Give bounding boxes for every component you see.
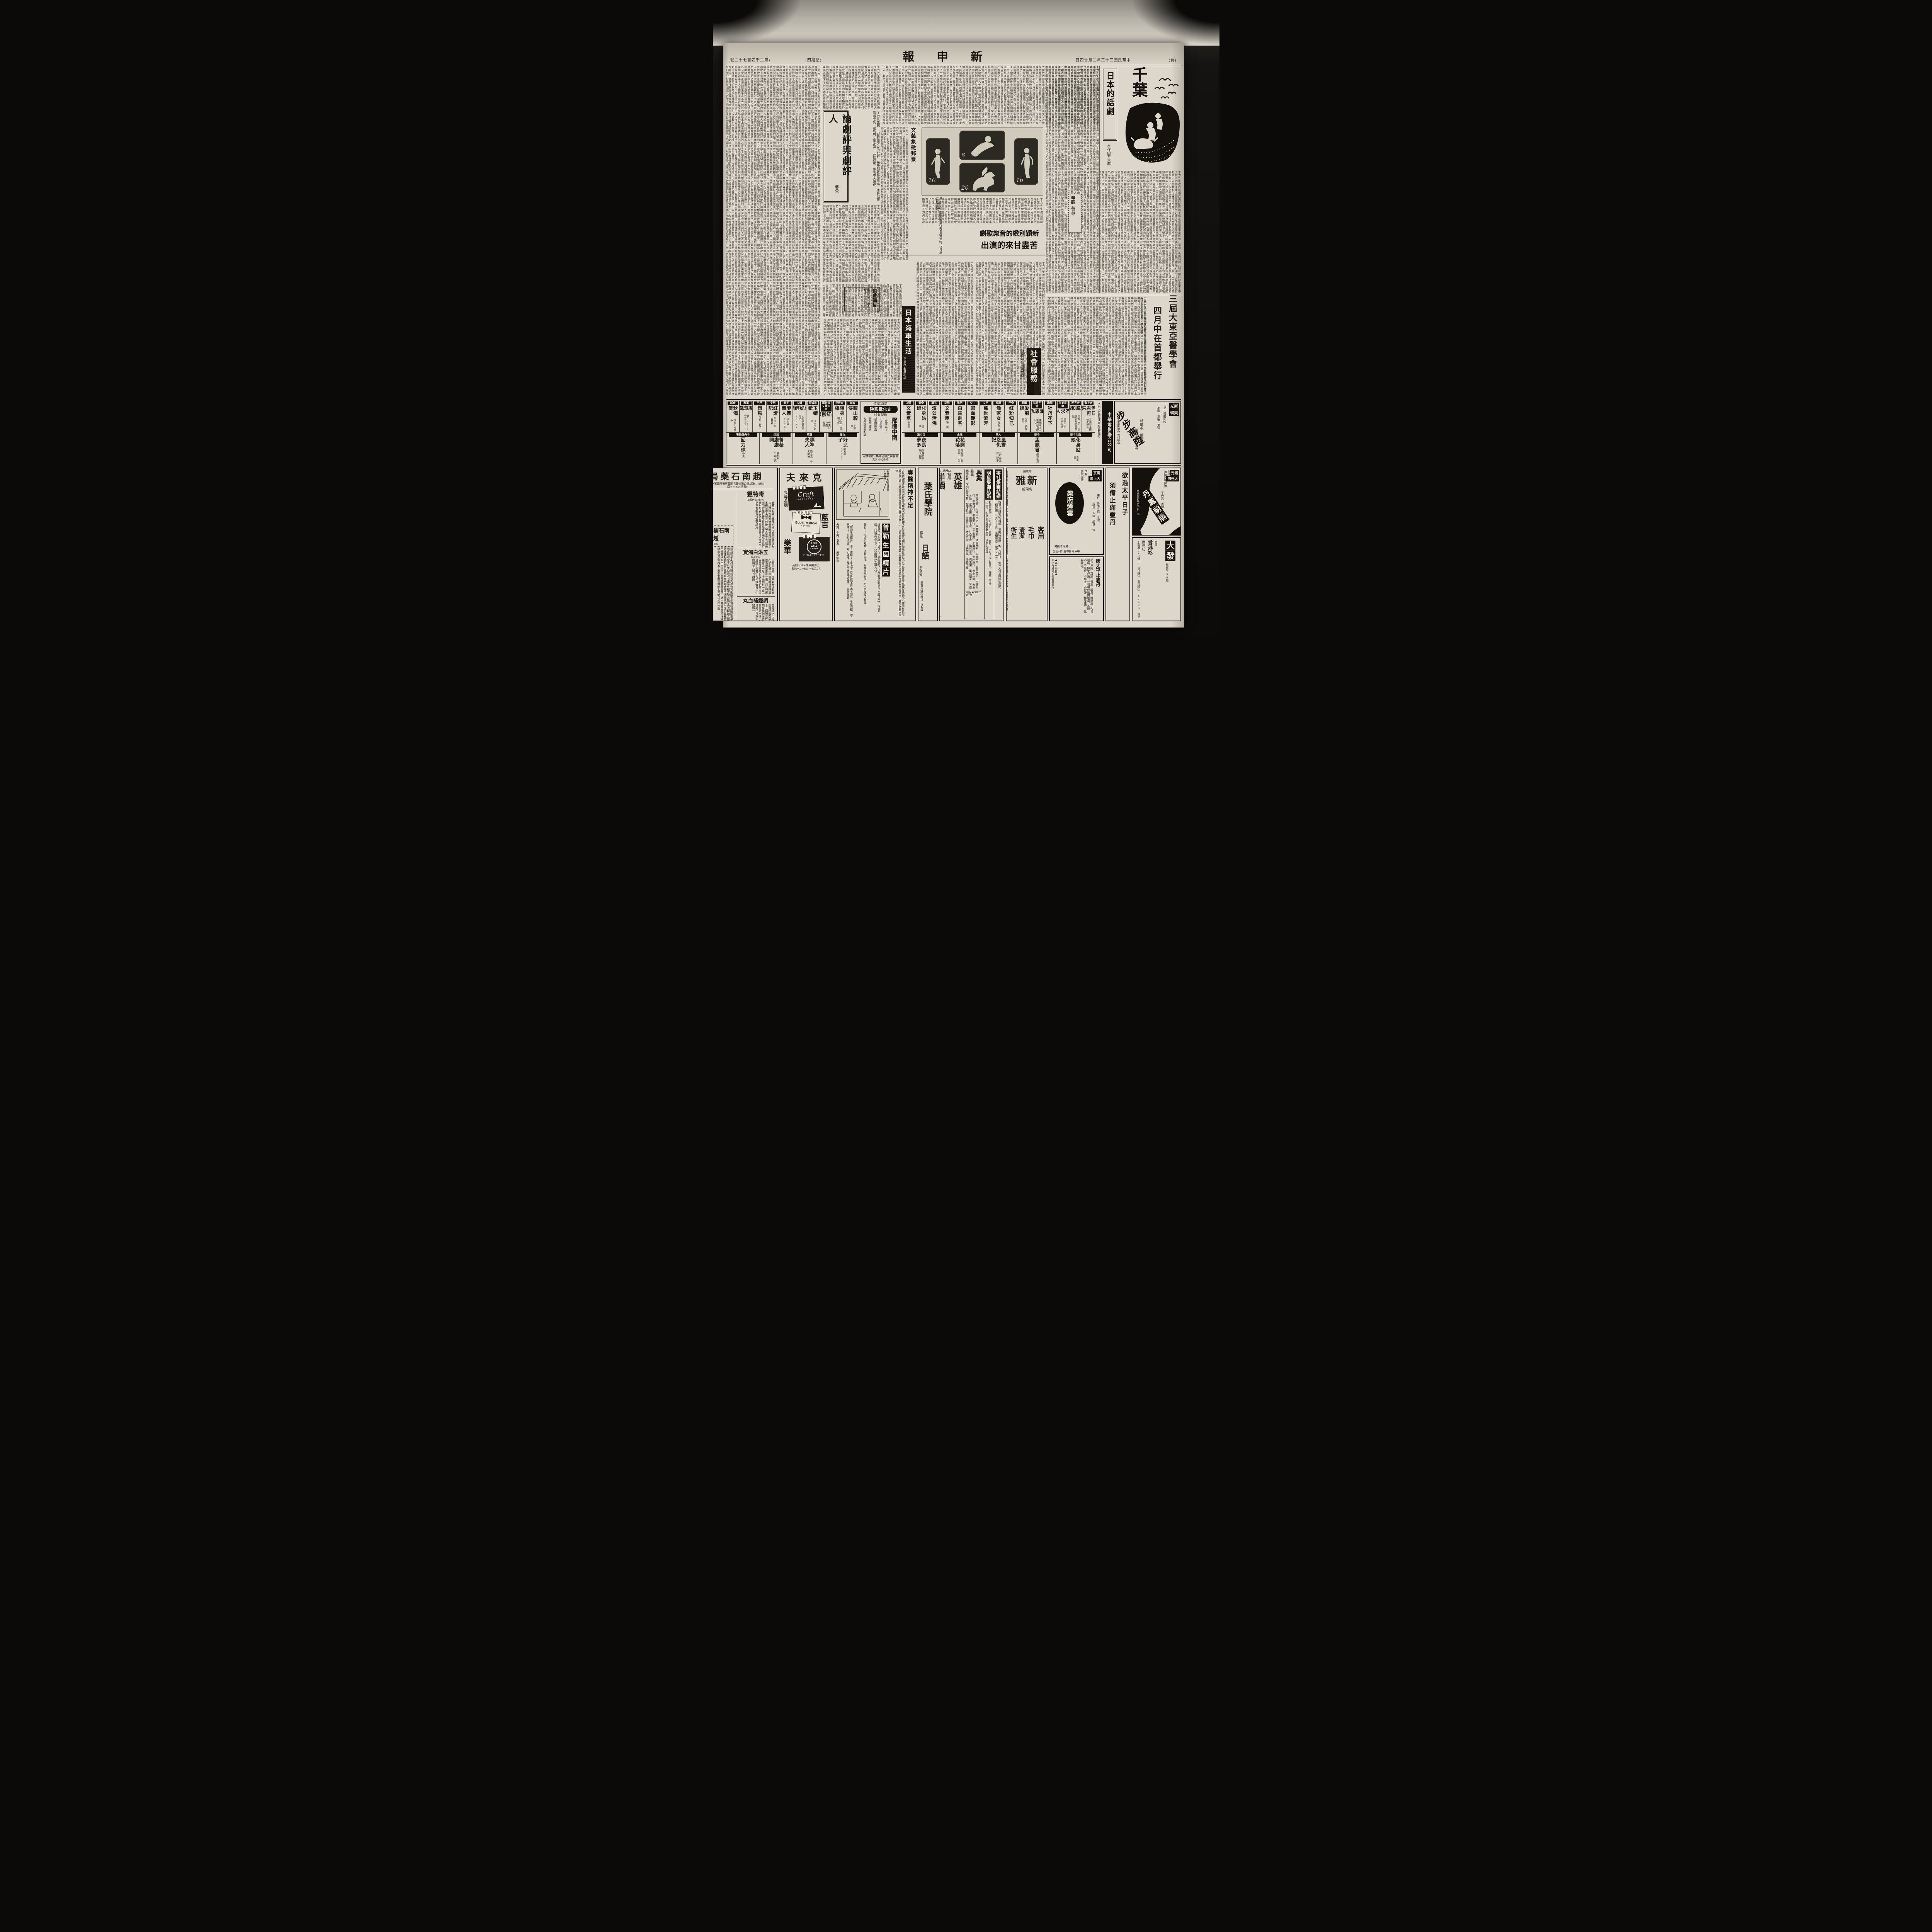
film-note: 龔秋霞 名曲五支 — [774, 452, 779, 463]
cinema-slogan: 明瞭現階段新中國躍進狀態 非此片不可不看 — [862, 454, 899, 461]
film-note: 二時半五時八時半 — [996, 452, 1001, 463]
film-subtitle: (軍事篇) — [884, 417, 888, 454]
shop-address: 正陽路280號 — [1165, 562, 1168, 589]
venue-label: 琪美 — [1169, 409, 1179, 416]
film-note: 平涼路 — [850, 425, 855, 432]
film-title: 碧血艷影 — [970, 406, 975, 426]
product-name: 寶濁白淋五 — [737, 548, 775, 556]
xinya-restaurant-ad: 路京南 雅新 館菜粤 客用 毛巾 清潔 衛生 毛巾獻客，成為飲食館之習慣，然此物… — [1006, 468, 1048, 621]
venue-label: 明光大 — [1070, 401, 1080, 405]
cinema-listing: 新新薔薇處處開龔秋霞 名曲五支 — [760, 432, 793, 464]
chiba-column-title: 日本的話劇 — [1103, 68, 1117, 141]
shop-item: 無光紡 — [1141, 540, 1145, 618]
venue-label: 滙老百 — [905, 433, 938, 437]
venue-label: 安平 — [980, 401, 990, 405]
cinema-name: 院影電化文 — [864, 406, 898, 413]
cinema-listing: 泰國愛船娘今天 德國巨片 — [1018, 401, 1031, 432]
medical-congress-headline: 三屆大東亞醫學會 四月中在首都舉行 — [1148, 294, 1181, 395]
navy-life-box: 日本海軍生活 平出英夫著 無心譯 — [902, 306, 915, 393]
tonic-header-col: 專醫精神不足 — [906, 469, 914, 619]
ad-cast: 李紅 歐陽莎菲 主演 — [1097, 494, 1100, 540]
cinema-listing: 榮金化身姑娘第二集 — [915, 401, 927, 432]
stamp-standing-figure: 16 — [1014, 138, 1038, 185]
article-text: 丁力先生說目前劇評家的批評幾乎都是感情用事也許他在看戲之先剛巧有女朋友請取觀衆筆… — [726, 66, 821, 395]
film-title: 薔薇處處開 — [769, 437, 784, 452]
article-text: 丁力先生說目前劇評家的批評幾乎都是感情用事也許他在看戲之先剛巧有女朋友請取觀衆筆… — [881, 127, 909, 260]
studio-price: 四十元 — [939, 600, 940, 613]
film-title: 躍進中國 — [890, 417, 898, 454]
film-company-note: ●七大首輪加映大東亞新聞片 — [1096, 401, 1101, 464]
venue-label: 山滙 — [943, 433, 976, 437]
cinema-listing: 門西烈馬今夜 斬子 — [753, 401, 766, 432]
ad-headline: 清潔 — [1018, 494, 1026, 571]
blue-ribbon-pack: BLUE RIBBON Cigarettes — [791, 512, 821, 534]
studio-note: ●本月底止● — [939, 615, 963, 618]
lohwha-tin: LOHWHA IT'S TOASTED CIGARETTES — [799, 537, 830, 561]
cinema-listing: 安靜貴妃醉酒云裳歌舞劇團 電話23842 — [793, 401, 806, 432]
film-note: 袁美雲 — [1073, 456, 1078, 463]
cinema-listing: 海上大何日君再來袁美雲主演 後天新片 — [1082, 401, 1095, 432]
fee-box-note: 每行計算 補白另議 — [864, 289, 870, 310]
photo-studio-ad: 靜安寺路1251號西口 英雄 相館 半價 贈送放大 十二寸一張 十寸一張 四寸半… — [939, 469, 963, 619]
navy-life-title: 日本海軍生活 — [903, 309, 913, 355]
stamp-reclining-figure: 6 — [959, 131, 1005, 160]
headline-line2: 出演的來甘盡苦 — [974, 239, 1045, 251]
ad-studio: 品出司公合聯影電華中 — [1053, 550, 1080, 553]
venue-label: 華大 — [982, 433, 1015, 437]
restaurant-name: 雅新 — [1010, 473, 1045, 487]
film-title: 紅燈記 — [768, 406, 777, 417]
medicine-maker: 大上海路唐拾義藥廠發行 — [1051, 559, 1054, 619]
venue-label: 亞派恩 — [808, 401, 818, 405]
venue-label: 光新光滬 — [1032, 401, 1042, 408]
shop-name-tiles: 大發 — [1165, 541, 1175, 561]
cinema-cells-right: 海上大何日君再來袁美雲主演 後天新片明光大鸞鳳和鳴只有二天 後天新片丹鳳朝陽琪美… — [902, 401, 1095, 464]
cinema-listing: 琪美京南不求人最後二天 切勿錯過 — [1056, 401, 1069, 432]
venue-label: 榮金 — [916, 401, 926, 405]
tonic-copy: 「普勒生固精片」治(遺精)(早洩)以及性能不健全之痼疾，生精固精，寧神兼施，斷根… — [840, 523, 853, 617]
film-title: 化身姑娘 — [916, 406, 926, 425]
navy-life-translator: 無心譯 — [903, 371, 907, 379]
school-extra: 兼教英算 — [919, 563, 922, 580]
musical-review-headline: 劇歌樂音的緻別穎新 出演的來甘盡苦 — [974, 228, 1045, 258]
chiba-feature: 千葉 日本的話劇 久保田万太郎 — [1102, 66, 1181, 169]
dafa-shop-ad: 大發 正陽路280號 出售 香港衫 無光紡 (歡迎)(代做) 來料購送 電話即送… — [1132, 537, 1181, 621]
venue-label: 國萬 — [741, 401, 751, 405]
title-tile-char: 普 — [882, 524, 890, 532]
wedding-copy: 包仙樂禮堂 三月四日 素章·禮服 三月26日登記 分社山西路一〇二時 新島南京路… — [985, 501, 992, 590]
film-note: 只有二天 後天新片丹鳳朝陽 — [1071, 415, 1080, 432]
tonic-copy: 普勒生，治男性暗病、遺精早洩、服食三片見效，乃空前絕後之神藥。 — [854, 523, 867, 617]
restaurant-road: 路京南 — [1010, 470, 1045, 473]
film-note: 汪秀英 96761 — [783, 418, 789, 432]
lanji-name: 藍吉 — [819, 514, 830, 528]
cinema-listing: 亞派恩玉蜻蜓月筱珍登台 — [806, 401, 819, 432]
film-note: 周璇主演 — [1036, 452, 1038, 463]
cinema-listing: 聯國牡丹花下 — [1043, 401, 1056, 432]
film-title: 隱身機 — [835, 406, 844, 417]
venue-label: 聯國 — [1045, 401, 1055, 405]
school-address: 靜安寺路赫德路口 授會話 — [919, 580, 923, 612]
film-title: 標準夫人 — [804, 437, 814, 450]
cinema-listing: 和東曠山騎俠平涼路 — [846, 401, 859, 432]
ad-headline: 毛巾 — [1026, 494, 1036, 571]
scan-edge-fog — [713, 0, 1219, 46]
film-title: 夜長夢多 — [916, 437, 926, 449]
fee-box-title: 稿費價目 — [872, 289, 878, 310]
congress-line1: 三屆大東亞醫學會 — [1166, 294, 1179, 395]
film-title: 曠山騎俠 — [848, 406, 857, 425]
venue-label: 華光 — [929, 401, 939, 405]
cinema-listing: 海西白馬劍客 — [953, 401, 966, 432]
restaurant-copy: 毛巾獻客，成為飲食館之習慣，然此物公用，必須審慎，始不妨礙衛生。本館客巾備有二千… — [1006, 470, 1009, 613]
venue-label: 安靜 — [794, 401, 804, 405]
slogan-line2: 須備止痛靈丹 — [1107, 482, 1116, 621]
editorial-area: 丁力先生說目前劇評家的批評幾乎都是感情用事也許他在看戲之先剛巧有女朋友請取觀衆筆… — [726, 66, 1181, 396]
navy-life-byline: 平出英夫著 — [903, 357, 907, 371]
wedding-copy: 婚費包括閘利新禮服 王開結婚照 新三月四日 仙林大禮堂樂隊浩蕩花一切齊備 三月2… — [995, 501, 1002, 590]
newspaper-page: (號二十七百四千二第) (四期星) 報申新 日四廿月二年三十三國民華中 (賈) … — [723, 43, 1184, 628]
cinema-listing: 樂長夢裏情人汪秀英 96761 — [779, 401, 793, 432]
feature-film-ad: 光新 琪美 下期 兩院同映 張帆 周映 主演 步步高陞 韓蘭根 關宏達 殷秀岑 … — [1114, 401, 1181, 464]
tonic-header-copy: 人生精神而勝黃金四肢百體毫無病狀實患精神不足比隨便毛病更加痛恨況且不出苦處終常作… — [891, 469, 905, 616]
cinema-listing: 萊蓬標準夫人陳燕燕 今天獻映 — [793, 432, 826, 464]
masthead-title: 報申新 — [903, 47, 1005, 64]
product-copy: 治五淋白濁王道藥驗無論新起久患能保一瓶痊癒勸根萬試萬靈憑此廣告買一送一瓶無效退藥… — [737, 559, 775, 596]
venue-label: 城金 — [728, 401, 738, 405]
pharmacy-phone: )四三三五九話電( — [713, 485, 776, 489]
broker-service: 代理買賣 下列股票 — [966, 469, 969, 494]
title-tile-char: 片 — [882, 568, 890, 577]
venue-label: 萊蓬 — [795, 433, 824, 437]
stamp-standing-figure: 10 — [926, 138, 950, 185]
cigarette-phone: (電話)一二一四四·一五〇二九 — [782, 567, 830, 570]
cinema-listing: 華中市南化身姑娘袁美雲 — [1056, 432, 1095, 464]
page-date: 日四廿月二年三十三國民華中 — [1076, 57, 1131, 63]
article-text: 丁力先生說目前劇評家的批評幾乎都是感情用事也許他在看戲之先剛巧有女朋友請取觀衆筆… — [1046, 66, 1100, 293]
film-title: 桃紅柳綠 — [820, 412, 833, 422]
stamps-figure: 10 6 20 16 — [922, 128, 1043, 196]
film-title: 夢裏情人 — [781, 406, 791, 418]
cinema-listings-band: 光新 琪美 下期 兩院同映 張帆 周映 主演 步步高陞 韓蘭根 關宏達 殷秀岑 … — [726, 399, 1181, 466]
film-title: 化身姑娘 — [1071, 437, 1080, 456]
craft-cigarette-ad: 夫來克 高等名烟 Craft CIGARETTES BLUE RIBBON Ci… — [779, 468, 833, 621]
broker-phone: 電話 ◆ 91626 91121 — [966, 591, 983, 597]
painkiller-slogan-ad: 欲過太平日子 須備止痛靈丹 — [1105, 468, 1130, 621]
product-copy: 主治經水不調乾血癆調經臨腹痛白帶下一切婦女經病易如反掌保全症為此黃用愚一送一先吃… — [737, 604, 775, 621]
drama-essay-title: 論劇評與劇評人 — [826, 114, 853, 184]
product-name: 靈特毒 — [737, 490, 775, 498]
ad-note: 下期 兩院同映 — [1163, 404, 1166, 431]
film-title: 孟麗君 — [1034, 437, 1039, 452]
venue-label: 海上大 — [1083, 401, 1094, 405]
broker-type: 股票 — [969, 469, 974, 476]
venue-label: 場動運央中 — [729, 433, 757, 437]
cigarette-maker: 品出司公草煙華樂海上 — [782, 564, 830, 567]
film-note: 李麗華主演 後天起換映新片 — [1033, 419, 1041, 432]
social-service-title: 社會服務 — [1028, 350, 1039, 383]
wedding-ad-mingxing: 明星集團結婚 包仙樂禮堂 三月四日 素章·禮服 三月26日登記 分社山西路一〇二… — [984, 469, 993, 619]
ad-cast: 殷秀岑 主演 — [1134, 429, 1139, 464]
cinema-listing: 山滙花開花落提籃橋 袁美雲 王引 — [940, 432, 979, 464]
venue-label: 江浙 — [903, 401, 913, 405]
illustration-caption: 諸葛亮·開蜀漢基業· — [886, 470, 889, 517]
film-title: 樂府煙雲 — [1065, 490, 1074, 516]
title-tile-char: 生 — [882, 541, 890, 550]
article-text: 丁力先生說目前劇評家的批評幾乎都是感情用事也許他在看戲之先剛巧有女朋友請取觀衆筆… — [823, 319, 900, 395]
article-text: 丁力先生說目前劇評家的批評幾乎都是感情用事也許他在看戲之先剛巧有女朋友請取觀衆筆… — [823, 205, 880, 282]
venue-label: 泰國 — [1019, 401, 1029, 405]
ads-column-right: 光滬 明光大 兩院同時獻映 下期 丹鳳朝陽 王丹鳳 姜明 主演 高梨痕 導演 中… — [1132, 468, 1181, 621]
zhuge-liang-illustration — [836, 469, 890, 520]
film-note: 商芳臣 82623 — [840, 447, 845, 463]
film-note: 電50162 今日二本 — [743, 415, 749, 432]
venue-label: 星明 — [942, 401, 952, 405]
stamp-pegasus: 20 — [959, 163, 1005, 192]
poem-title: 辛醜 — [1070, 196, 1076, 204]
cinema-listing: 華大風雪恩仇記二時半五時八時半 — [979, 432, 1018, 464]
title-tile-char: 精 — [882, 559, 890, 568]
cinema-listing: 光新光滬藝海恩仇記李麗華主演 後天起換映新片 — [1031, 401, 1043, 432]
cinema-location: 堍橋路浦韜 — [862, 402, 899, 405]
stamp-value: 10 — [928, 177, 935, 184]
program-item: 新生的武漢 — [874, 417, 877, 454]
film-title: 萬世流芳 — [983, 406, 988, 426]
film-title: 秋海棠 — [728, 406, 738, 418]
cinema-listing: 場動運央中回力球今天 — [726, 432, 759, 464]
film-title: 雙珠鳳 — [740, 406, 753, 415]
title-tile-char: 勒 — [882, 532, 890, 541]
fee-box: 稿費價目 每行計算 補白另議 — [844, 287, 880, 311]
film-note: 今夜七時半演 — [730, 419, 736, 432]
film-subtitle: (外交篇) — [879, 417, 882, 454]
title-tile-char: 大 — [1165, 541, 1175, 551]
ads-column-2: 欲過太平日子 須備止痛靈丹 京南 海上大 下期 兩院同映 樂府煙雲 李紅 歐陽莎… — [1049, 468, 1130, 621]
wedding-ad-ningshe: 寧社集團結婚 婚費包括閘利新禮服 王開結婚照 新三月四日 仙林大禮堂樂隊浩蕩花一… — [994, 469, 1002, 619]
film-company-banner: 中華電影聯合公司 — [1102, 401, 1113, 464]
film-title: 紅粉知己 — [1009, 406, 1014, 426]
advertising-band: 光滬 明光大 兩院同時獻映 下期 丹鳳朝陽 王丹鳳 姜明 主演 高梨痕 導演 中… — [726, 468, 1181, 621]
venue-label: 都麗 — [993, 401, 1003, 405]
cinema-cells-left: 和東曠山騎俠平涼路界世大隱身機大京班 三樓電影團劇濱文華中大桃紅柳綠今天日夜戲 … — [726, 401, 859, 464]
ad-studio: 中華電影聯合公司出品 — [1117, 417, 1120, 463]
cinema-note: (今日起映) — [862, 413, 899, 416]
program-item: 大東亞電影新聞 — [863, 417, 866, 454]
venue-label: 央中 — [968, 401, 978, 405]
cinema-listing: 華光濟公活佛 — [928, 401, 940, 432]
film-note: 第三集 — [907, 421, 910, 429]
ad-note: 下期 — [1167, 470, 1170, 485]
cinema-listing: 央中碧血艷影 — [966, 401, 979, 432]
studio-address: 靜安寺路1251號西口 — [939, 469, 963, 473]
congress-line2: 四月中在首都舉行 — [1151, 306, 1163, 395]
film-note: 月筱珍登台 — [810, 420, 815, 432]
page-header: (號二十七百四千二第) (四期星) 報申新 日四廿月二年三十三國民華中 (賈) — [726, 43, 1181, 66]
film-title: 牡丹花下 — [1048, 406, 1053, 426]
venue-label: 新新 — [762, 433, 791, 437]
school-mode: 個別 — [919, 528, 923, 541]
product-copy: 弱精補身本局發行班龍補腎丸專治腎虧精萎夢遺精滑精陽萎早洩房事過度精竭少年延年益壽… — [713, 548, 733, 621]
wedding-banner: 寧社集團結婚 — [995, 469, 1002, 500]
venue-label: 華中 — [1020, 433, 1053, 437]
stamp-value: 6 — [961, 152, 965, 159]
product-tag: 單保立出 — [737, 556, 775, 559]
film-note: 今天 德國巨片 — [1021, 418, 1027, 432]
shop-offer: 出售 — [1154, 540, 1157, 618]
film-title: 玉蜻蜓 — [808, 406, 818, 420]
pharmacy-product-right: 憑此廣告 買一送一 無效不贈 此券有效 祇有三天 贈送 丸腎補石南趙 班龍 弱精… — [713, 490, 734, 621]
tonic-copy: 諸葛亮，字孔明，漢郡人，居臥龍岡，徐庶薦與劉玄德，三顧求之，未出茅廬，已知三分天… — [868, 523, 881, 617]
film-title: 濟公活佛 — [932, 406, 937, 426]
cigarette-tagline: 高等名烟 — [782, 481, 789, 516]
cinema-listing: 安西紅燈記今夜三本 孟麗君 — [766, 401, 779, 432]
film-title: 文素臣 — [906, 406, 911, 421]
venue-label: 華中市南 — [1059, 433, 1092, 437]
cinema-listing: 明光大鸞鳳和鳴只有二天 後天新片丹鳳朝陽 — [1069, 401, 1082, 432]
broker-list: 閘北水電 內地自來水 華商電氣 浦東電氣 五洲藥房 龍章造紙 金城銀行 中南銀行… — [966, 494, 979, 591]
film-title: 風雪恩仇記 — [991, 437, 1006, 452]
film-title: 文素臣 — [944, 406, 949, 421]
pharmacy-product-left: 靈特毒 )藥服內瘡疥好包( 此藥內服專治各種疥瘡皮膚濕毒等症服後功效偉大藥力速保… — [736, 490, 776, 621]
film-title: 愛船娘 — [1019, 406, 1029, 418]
film-note: 最後二天 切勿錯過 — [1060, 418, 1065, 432]
film-note: 周璇主演 — [997, 421, 1000, 431]
ad-director: 高梨痕 導演 — [1155, 501, 1158, 532]
social-service-subtitle: 商困民生兼籌並顧 — [1017, 350, 1026, 395]
film-note: 今夜 斬子 — [758, 416, 761, 429]
wedding-banner: 明星集團結婚 — [985, 469, 993, 500]
film-title: 回力球 — [740, 437, 745, 452]
film-title-oval: 樂府煙雲 — [1055, 482, 1084, 524]
cinema-listing: 界世大隱身機大京班 三樓電影 — [833, 401, 846, 432]
venue-label: 門金 — [1006, 401, 1016, 405]
film-title: 白馬劍客 — [957, 406, 963, 426]
cinema-listing: 星九好兒子商芳臣 82623 — [826, 432, 859, 464]
illustration-caption: 未出茅廬· — [883, 470, 886, 513]
venue-label: 安西 — [767, 401, 778, 405]
stamp-value: 20 — [961, 184, 969, 191]
article-text: 丁力先生說目前劇評家的批評幾乎都是感情用事也許他在看戲之先剛巧有女朋友請取觀衆筆… — [917, 262, 974, 395]
shop-note: (歡迎)(代做) 來料購送 電話即送 87543 貨上 — [1137, 540, 1140, 618]
ad-note: 兩院同映 — [1080, 470, 1083, 493]
lohwha-name: 樂華 — [782, 539, 792, 554]
cinema-listing: 江浙文素臣第三集 — [902, 401, 915, 432]
yeshi-school-ad: 葉氏學院 個別 日語 兼教英算 靜安寺路赫德路口 授會話 — [918, 468, 938, 621]
product-name: 丸腎補石南趙 — [713, 527, 732, 542]
venue-label: 海西 — [955, 401, 965, 405]
culture-cinema-ad: 堍橋路浦韜 院影電化文 (今日起映) 躍進中國 (軍事篇) (外交篇) 新生的武… — [861, 401, 901, 464]
film-note: 袁美雲主演 後天新片 — [1086, 418, 1091, 432]
film-note: 云裳歌舞劇團 電話23842 — [795, 415, 803, 432]
film-title: 何日君再來 — [1082, 406, 1095, 418]
school-name: 葉氏學院 — [922, 470, 934, 528]
film-note: 今天 — [742, 452, 744, 457]
product-copy: 此藥內服專治各種疥瘡皮膚濕毒等症服後功效偉大藥力速保險斷根萬試萬靈永不復發根本解… — [737, 502, 775, 548]
product-tag: )藥服內瘡疥好包( — [737, 498, 775, 502]
article-text: 丁力先生說目前劇評家的批評幾乎都是感情用事也許他在看戲之先剛巧有女朋友請取觀衆筆… — [1100, 171, 1181, 293]
danfeng-movie-ad: 光滬 明光大 兩院同時獻映 下期 丹鳳朝陽 王丹鳳 姜明 主演 高梨痕 導演 中… — [1132, 468, 1181, 536]
ad-director: 何兆璋導演 — [1054, 545, 1068, 548]
poem-subtitle: 薔薇 — [1070, 206, 1076, 215]
cinema-listing: 滙老百夜長夢多滑稽喜劇 明天獻映 — [902, 432, 940, 464]
venue-label: 和東 — [847, 401, 858, 405]
venue-label: 樂長 — [781, 401, 791, 405]
ad-cast: 韓蘭根 關宏達 — [1139, 419, 1145, 462]
film-note: 大京班 三樓電影 — [837, 417, 842, 432]
drama-essay-author: 藝公 — [833, 185, 839, 193]
zhaonanshi-pharmacy-ad: 局藥石南趙 家一第壁隔署察警閘老面後司公新新海上)址地( )四三三五九話電( 靈… — [713, 468, 778, 621]
film-title: 烈馬 — [757, 406, 762, 416]
tonic-name-tiles: 普勒生固精片 — [882, 523, 890, 617]
pharmacy-name: 局藥石南趙 — [713, 470, 776, 482]
ad-studio: 中華電影聯合公司出品 — [1136, 490, 1139, 536]
medicine-name: 唐太平止痛丹 — [1095, 559, 1102, 619]
chiba-title: 千葉 — [1131, 66, 1146, 97]
venue-label: 琪美京南 — [1058, 401, 1068, 408]
title-tile-char: 發 — [1165, 551, 1175, 561]
venue-label: 團劇濱文華中大 — [821, 401, 831, 412]
drama-essay-box: 論劇評與劇評人 藝公 — [823, 111, 849, 202]
tonic-header: 專醫精神不足 — [906, 469, 914, 509]
congress-dateline: △南京訊 第三屆大東亞醫學會，定四月中在首都擧行，人民負擔者，利用職務……二七人… — [1128, 298, 1147, 394]
cinema-listing: 門金紅粉知己 — [1005, 401, 1017, 432]
tonic-sellers: 先施，中央，寶嵩……藥房均售 — [836, 523, 839, 617]
cinema-listing: 城金秋海棠今夜七時半演 — [726, 401, 739, 432]
classified-ads: 寧社集團結婚 婚費包括閘利新禮服 王開結婚照 新三月四日 仙林大禮堂樂隊浩蕩花一… — [939, 468, 1004, 621]
cinema-listing: 星明文素臣第二集 — [940, 401, 953, 432]
film-title: 漁家女 — [996, 406, 1001, 421]
stamp-value: 16 — [1016, 177, 1024, 184]
studio-offer: 半價 — [939, 473, 947, 554]
broker-name: 興業 — [975, 469, 983, 481]
film-note: 第二集 — [946, 421, 948, 429]
ad-cast: 舘適 主演 嚴俊 演 — [1092, 503, 1095, 546]
headline-line1: 劇歌樂音的緻別穎新 — [974, 228, 1045, 238]
cigarette-brand: 夫來克 — [782, 470, 830, 483]
tangtaiping-painkiller-ad: 唐太平止痛丹 立止牙痛、耳痛、骨痛、腰痛、瘋濕痛、各種頭痛、婦女經痛、一切神經肌… — [1049, 556, 1104, 621]
ad-headline: 衛生 — [1010, 494, 1018, 571]
edition-marker: (賈) — [1169, 57, 1177, 63]
chiba-author: 久保田万太郎 — [1107, 145, 1112, 168]
film-note: 陳燕燕 今天獻映 — [807, 450, 812, 463]
medicine-copy: 立止牙痛、耳痛、骨痛、腰痛、瘋濕痛、各種頭痛、婦女經痛、一切神經肌肉疼痛，不礙心… — [1058, 559, 1093, 613]
social-service-box: 社會服務 — [1027, 348, 1041, 395]
weekday: (四期星) — [806, 57, 822, 63]
film-title: 藝海恩仇記 — [1031, 409, 1043, 419]
craft-pack: Craft CIGARETTES — [787, 486, 824, 511]
drama-essay-opening: 丁力先生說：「目前劇評家的批評，幾乎都是感情用事，也許他在看戲之先，剛巧有女朋友… — [851, 111, 880, 202]
school-program: 日語 — [919, 541, 930, 563]
lohwha-sub: CIGARETTES — [799, 554, 829, 557]
venue-label: 界世大 — [834, 401, 845, 405]
title-tile-char: 固 — [882, 550, 890, 559]
venue-label: 門西 — [754, 401, 765, 405]
venue-label: 光滬 — [1170, 470, 1179, 476]
cinema-listing: 安平萬世流芳 — [979, 401, 992, 432]
article-text: 丁力先生說目前劇評家的批評幾乎都是感情用事也許他在看戲之先剛巧有女朋友請取觀衆筆… — [823, 66, 880, 109]
film-note: 今天日夜戲 客滿 — [822, 422, 830, 432]
shop-item: 香港衫 — [1146, 540, 1153, 618]
cinema-listing: 國萬雙珠鳳電50162 今日二本 — [740, 401, 753, 432]
film-title: 不求人 — [1056, 409, 1069, 418]
venue-label: 京南 — [1092, 470, 1101, 476]
medicine-sellers: ◆藥房均售◆ — [1054, 559, 1058, 619]
ad-note: 下期 — [1084, 470, 1087, 493]
slogan-line1: 欲過太平日子 — [1119, 472, 1129, 621]
newspaper-scan: (號二十七百四千二第) (四期星) 報申新 日四廿月二年三十三國民華中 (賈) … — [713, 0, 1219, 659]
film-note: 滑稽喜劇 明天獻映 — [918, 449, 924, 463]
film-note: 第二集 — [918, 425, 924, 432]
